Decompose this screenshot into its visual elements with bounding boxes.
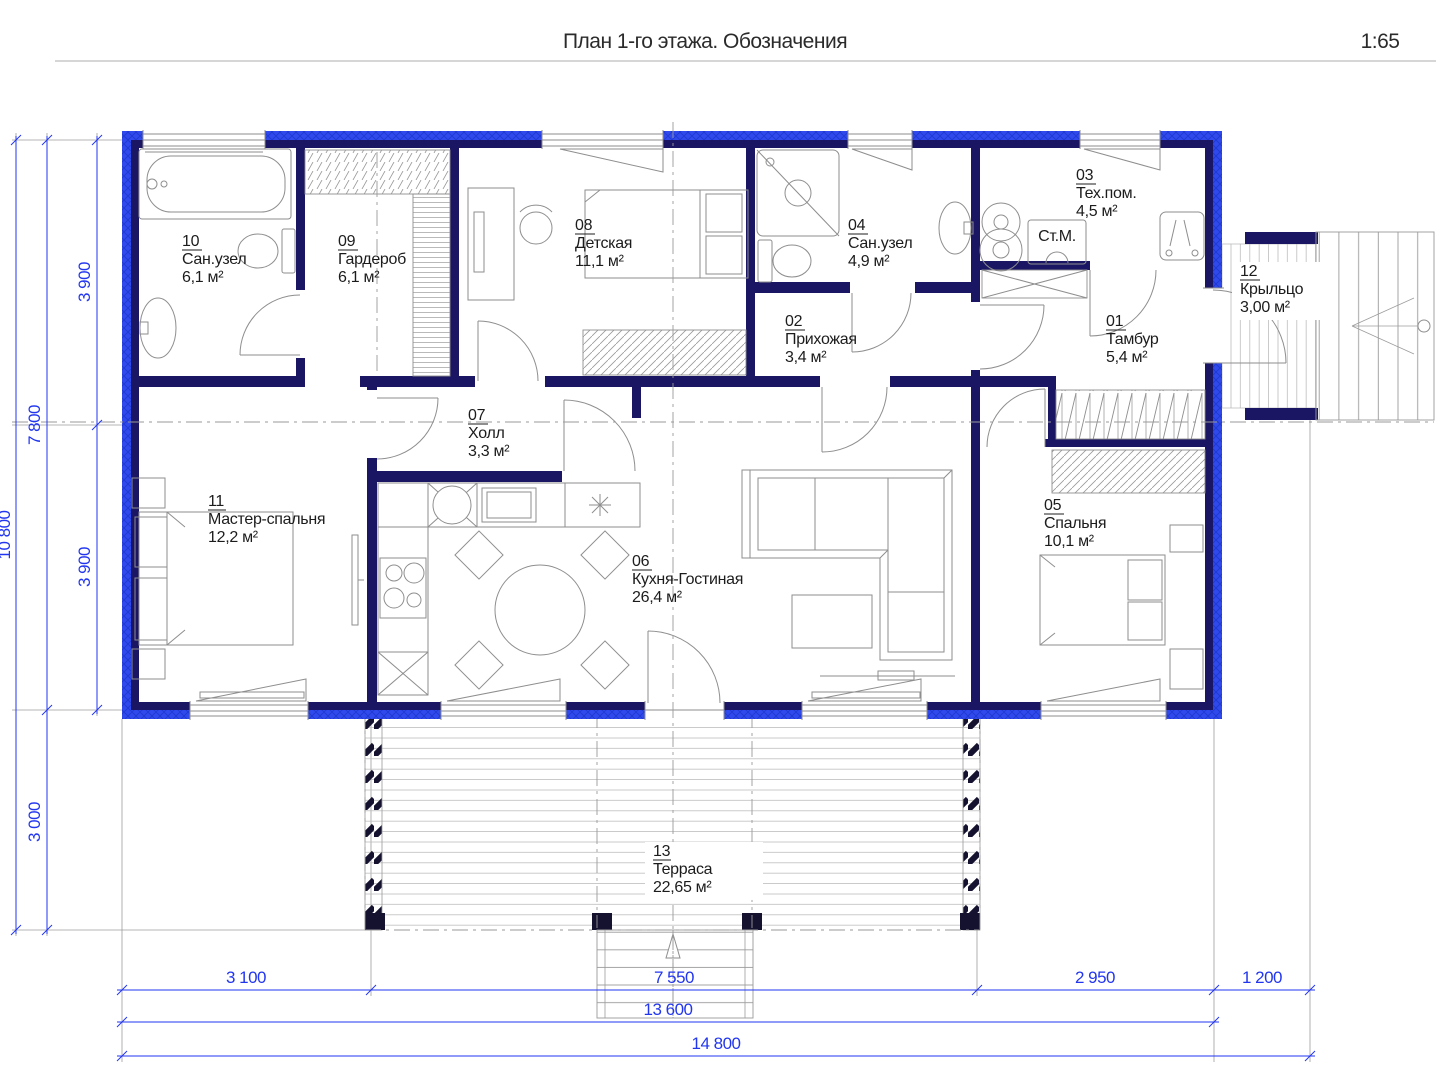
scale-value: 1:65 [1361, 30, 1400, 53]
dim-13600: 13 600 [644, 1000, 693, 1019]
room-label-05: 05 Спальня 10,1 м² [1044, 497, 1106, 550]
room-area: 5,4 м² [1106, 349, 1148, 366]
room-area: 3,4 м² [785, 349, 827, 366]
wall-segment [890, 376, 980, 387]
porch-wall-top [1245, 232, 1318, 244]
room-label-09: 09 Гардероб 6,1 м² [338, 233, 406, 286]
room-name: Тех.пом. [1076, 185, 1136, 202]
room-name: Прихожая [785, 331, 857, 348]
floor-plan-page: План 1-го этажа. Обозначения 1:65 [0, 0, 1440, 1080]
window-kitchen [441, 679, 566, 720]
room-label-10: 10 Сан.узел 6,1 м² [182, 233, 246, 286]
window-master [190, 679, 308, 720]
wall-segment [139, 376, 297, 387]
wall-segment [755, 376, 820, 387]
room-area: 6,1 м² [182, 269, 224, 286]
wall-segment [971, 148, 980, 302]
tv-icon [352, 535, 364, 625]
desk-icon [468, 188, 552, 300]
room-name: Холл [468, 425, 505, 442]
sink-icon [140, 298, 176, 358]
wall-segment [296, 148, 305, 290]
room-area: 3,3 м² [468, 443, 510, 460]
room-name: Детская [575, 235, 632, 252]
room-label-13: 13 Терраса 22,65 м² [645, 842, 763, 900]
room-number: 07 [468, 407, 486, 424]
room-number: 12 [1240, 263, 1258, 280]
room-number: 11 [208, 493, 224, 510]
room-number: 05 [1044, 497, 1062, 514]
window-kidsroom [542, 130, 663, 172]
room-number: 10 [182, 233, 200, 250]
room-name: Мастер-спальня [208, 511, 325, 528]
door-hallway-living [822, 387, 887, 452]
room-number: 08 [575, 217, 593, 234]
room-name: Спальня [1044, 515, 1106, 532]
toilet-icon [758, 240, 811, 282]
tv-console-icon [820, 671, 955, 680]
room-number: 09 [338, 233, 356, 250]
washing-machine-label: Ст.М. [1038, 228, 1076, 245]
wall-segment [371, 471, 562, 482]
shower-icon [757, 150, 839, 236]
wall-segment [1045, 439, 1205, 447]
wall-segment [455, 376, 475, 387]
room-label-07: 07 Холл 3,3 м² [468, 407, 510, 460]
header: План 1-го этажа. Обозначения 1:65 [55, 30, 1436, 61]
dim-14800: 14 800 [692, 1034, 741, 1053]
room-name: Терраса [653, 861, 713, 878]
wall-segment [367, 471, 377, 702]
dim-7800: 7 800 [25, 405, 44, 445]
dim-1200: 1 200 [1242, 968, 1282, 987]
door-hall-kitchen [564, 400, 635, 471]
wall-segment [360, 376, 455, 387]
room-name: Гардероб [338, 251, 406, 268]
page-title: План 1-го этажа. Обозначения [563, 30, 847, 53]
room-label-11: 11 Мастер-спальня 12,2 м² [208, 493, 325, 546]
entrance-opening [1203, 288, 1224, 363]
dim-10800: 10 800 [0, 510, 14, 559]
dim-3000: 3 000 [25, 802, 44, 842]
dimensions-left: 3 900 3 900 7 800 3 000 10 800 [0, 135, 102, 935]
room-number: 06 [632, 553, 650, 570]
coffee-table-icon [792, 595, 872, 648]
wardrobe-rail-icon [305, 150, 450, 194]
dim-2950: 2 950 [1075, 968, 1115, 987]
wall-segment [367, 458, 377, 471]
room-label-08: 08 Детская 11,1 м² [575, 217, 632, 270]
room-area: 11,1 м² [575, 253, 625, 270]
porch-wall-bottom [1245, 408, 1318, 420]
fridge-icon [589, 494, 611, 516]
door-bathroom04 [852, 293, 911, 352]
wardrobe-shelves-icon [413, 194, 450, 376]
boiler-icon [1160, 212, 1204, 260]
window-bathroom04 [848, 130, 912, 170]
room-label-12: 12 Крыльцо 3,00 м² [1232, 262, 1326, 320]
room-number: 04 [848, 217, 866, 234]
floor-plan-canvas: План 1-го этажа. Обозначения 1:65 [0, 0, 1440, 1080]
room-area: 22,65 м² [653, 879, 712, 896]
terrace-column-left [365, 710, 382, 930]
kitchen-counter [378, 483, 640, 695]
sink-icon [939, 202, 973, 254]
room-area: 10,1 м² [1044, 533, 1095, 550]
water-tanks-icon [980, 203, 1022, 271]
room-area: 4,9 м² [848, 253, 890, 270]
room-number: 02 [785, 313, 803, 330]
living-furniture [742, 470, 955, 680]
hob-icon [380, 558, 426, 618]
room-number: 13 [653, 843, 671, 860]
wall-segment [450, 148, 459, 376]
dining-table-icon [455, 531, 629, 689]
kitchen-furniture [378, 483, 640, 695]
wall-segment [980, 261, 1090, 270]
toilet-icon [238, 229, 295, 273]
room-name: Сан.узел [848, 235, 912, 252]
room-label-04: 04 Сан.узел 4,9 м² [848, 217, 912, 270]
kids-wardrobe-icon [583, 330, 746, 375]
room-label-03: 03 Тех.пом. 4,5 м² [1076, 167, 1136, 220]
wall-segment [971, 370, 980, 710]
room-area: 26,4 м² [632, 589, 683, 606]
porch-stairs [1316, 232, 1434, 420]
room-name: Сан.узел [182, 251, 246, 268]
room-name: Крыльцо [1240, 281, 1304, 298]
master-bedroom-furniture [132, 478, 364, 679]
room-label-02: 02 Прихожая 3,4 м² [785, 313, 857, 366]
door-bedroom05 [987, 389, 1045, 447]
dim-3900-bottom: 3 900 [75, 547, 94, 587]
door-terrace [648, 631, 720, 703]
kitchen-sink-icon [428, 483, 477, 527]
wall-segment [755, 282, 850, 293]
wall-segment [545, 376, 755, 387]
dim-7550: 7 550 [654, 968, 694, 987]
room-area: 12,2 м² [208, 529, 259, 546]
bathtub-icon [139, 149, 291, 219]
dim-3900-top: 3 900 [75, 262, 94, 302]
wall-segment [915, 282, 975, 293]
door-bathroom10 [240, 295, 300, 355]
wall-segment [746, 148, 755, 387]
window-bedroom05 [1041, 679, 1166, 720]
doormat-grate-icon [1056, 390, 1205, 439]
stove-icon [482, 488, 536, 522]
wall-segment [367, 387, 377, 390]
terrace-column-right [963, 710, 980, 930]
room-area: 3,00 м² [1240, 299, 1291, 316]
wall-segment [632, 376, 641, 418]
base-cabinet-icon [378, 652, 428, 695]
sofa-icon [742, 470, 952, 660]
room-area: 6,1 м² [338, 269, 380, 286]
room-name: Кухня-Гостиная [632, 571, 743, 588]
window-living [802, 679, 927, 720]
bedroom05-closet-icon [1052, 450, 1205, 493]
room-area: 4,5 м² [1076, 203, 1118, 220]
porch [1222, 232, 1434, 420]
terrace-door-opening [645, 701, 724, 720]
room-number: 01 [1106, 313, 1124, 330]
door-kidsroom [478, 321, 538, 381]
wall-segment [296, 358, 305, 387]
room-number: 03 [1076, 167, 1094, 184]
room-name: Тамбур [1106, 331, 1159, 348]
wall-segment [1048, 376, 1056, 447]
wall-segment [980, 376, 1056, 387]
room-label-06: 06 Кухня-Гостиная 26,4 м² [632, 553, 743, 606]
door-tambour-hallway [980, 305, 1044, 369]
door-master [377, 398, 438, 459]
window-techroom [1080, 130, 1160, 170]
dim-3100: 3 100 [226, 968, 266, 987]
washing-machine-icon: Ст.М. [1028, 220, 1086, 264]
